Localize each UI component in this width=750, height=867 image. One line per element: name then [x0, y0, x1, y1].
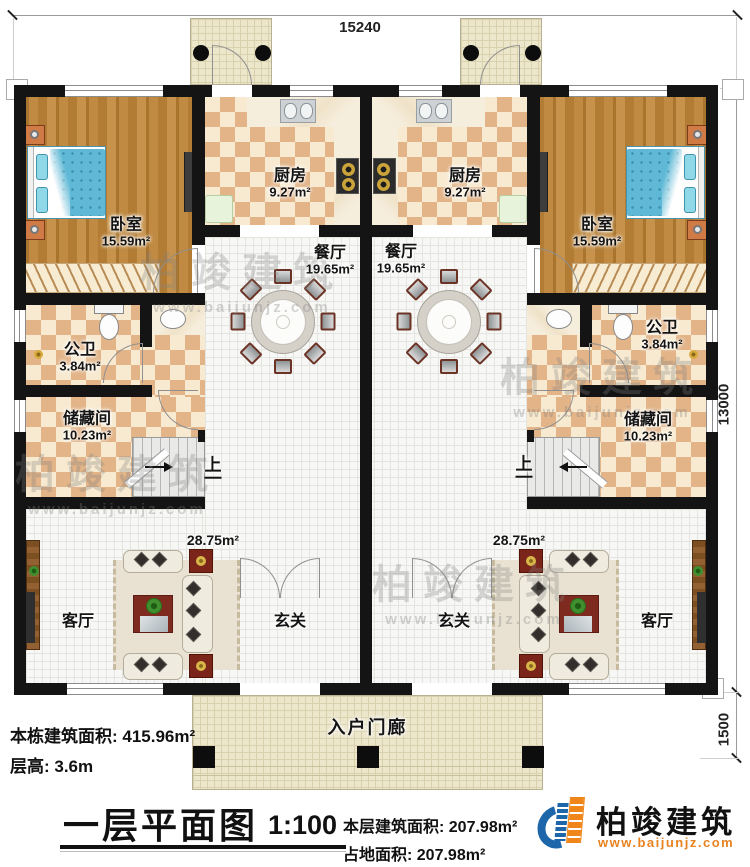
brand-website: www.baijunjz.com	[598, 835, 734, 850]
sofa-group	[112, 545, 242, 680]
porch-column	[193, 45, 209, 61]
pillow	[36, 154, 48, 180]
porch-step	[193, 775, 542, 776]
floor-plan-sheet: 15240 13000 1500 入户门廊	[0, 0, 750, 867]
wall	[192, 97, 205, 245]
entry-porch-label: 入户门廊	[328, 718, 408, 739]
wall	[492, 225, 527, 237]
wall	[442, 85, 480, 97]
lamp-icon	[196, 661, 206, 671]
sheet-scale: 1:100	[268, 810, 337, 841]
bedroom-tv	[184, 152, 192, 212]
window	[14, 310, 26, 342]
porch-column	[522, 746, 544, 768]
living-area-label: 28.75m²	[493, 532, 545, 548]
wall	[140, 305, 152, 347]
bed-group	[25, 125, 107, 240]
dining-chair	[405, 278, 428, 301]
bathroom-label: 公卫3.84m²	[641, 319, 682, 352]
porch-column	[193, 746, 215, 768]
foyer-label: 玄关	[438, 613, 470, 631]
dining-chair	[239, 342, 262, 365]
window	[67, 683, 163, 695]
burner	[342, 163, 355, 176]
wall	[527, 97, 540, 245]
nightstand	[687, 220, 707, 240]
side-table	[519, 654, 543, 678]
extension-line	[700, 758, 738, 759]
extension-line	[736, 17, 737, 79]
porch-column	[357, 746, 379, 768]
lamp-icon	[693, 130, 702, 139]
window	[706, 310, 718, 342]
title-underline-thin	[60, 851, 346, 852]
duplex-unit-left	[14, 85, 366, 695]
pillow	[684, 187, 696, 213]
headboard	[28, 147, 34, 218]
wall	[252, 85, 290, 97]
storage-label: 储藏间10.23m²	[63, 410, 111, 443]
sofa-group	[490, 545, 620, 680]
dim-side-height: 13000	[716, 383, 733, 427]
window	[399, 85, 442, 97]
dining-chair	[469, 278, 492, 301]
wall	[205, 225, 240, 237]
stair-arrow-head	[559, 462, 568, 472]
stair-arrow-head	[164, 462, 173, 472]
staircase	[132, 437, 205, 497]
wall	[163, 85, 212, 97]
dining-chair	[303, 342, 326, 365]
burner	[377, 163, 390, 176]
table-tray	[140, 616, 168, 632]
burner	[377, 178, 390, 191]
foyer-label: 玄关	[274, 613, 306, 631]
window	[569, 85, 667, 97]
lamp-icon	[196, 556, 206, 566]
title-underline	[60, 845, 346, 849]
stat-footprint: 占地面积: 207.98m²	[343, 841, 485, 865]
dim-porch-depth: 1500	[716, 708, 733, 752]
dining-chair	[397, 313, 412, 331]
bedroom-label: 卧室15.59m²	[573, 216, 621, 249]
wall	[527, 430, 534, 442]
sheet-title: 一层平面图	[63, 797, 258, 849]
wall	[366, 683, 412, 695]
wash-basin	[160, 309, 186, 329]
duplex-unit-right	[366, 85, 718, 695]
stairs-up-label: 上	[205, 456, 222, 479]
bathroom-label: 公卫3.84m²	[59, 341, 100, 374]
plant	[570, 598, 586, 614]
porch-column	[525, 45, 541, 61]
stair-arrow	[567, 466, 587, 468]
kitchen-label: 厨房9.27m²	[444, 167, 485, 200]
stove	[336, 158, 359, 194]
stove	[373, 158, 396, 194]
coffee-table	[133, 595, 173, 633]
dining-label: 餐厅19.65m²	[306, 244, 354, 277]
nightstand	[25, 125, 45, 145]
wall	[665, 683, 718, 695]
double-bed	[27, 146, 106, 219]
lamp-icon	[526, 661, 536, 671]
wall	[580, 385, 718, 397]
logo-building-icon	[566, 797, 585, 843]
sink-basin	[300, 103, 313, 119]
entry-porch: 入户门廊	[192, 695, 543, 790]
window	[706, 400, 718, 432]
wall	[14, 497, 205, 509]
wall	[366, 225, 413, 237]
wall	[580, 305, 592, 347]
wash-basin	[546, 309, 572, 329]
toilet	[99, 314, 119, 340]
living-tv	[26, 592, 35, 643]
storage-label: 储藏间10.23m²	[624, 411, 672, 444]
side-table	[189, 654, 213, 678]
dining-chair	[231, 313, 246, 331]
wall	[520, 85, 569, 97]
stairs-up-label: 上	[516, 455, 533, 478]
living-area-label: 28.75m²	[187, 532, 239, 548]
table-tray	[564, 616, 592, 632]
wall	[706, 85, 718, 310]
wall	[492, 683, 569, 695]
porch-column	[255, 45, 271, 61]
loveseat	[549, 653, 609, 680]
lamp-icon	[30, 225, 39, 234]
wall	[14, 85, 26, 310]
headboard	[698, 147, 704, 218]
pillow	[684, 154, 696, 180]
dining-label: 餐厅19.65m²	[377, 243, 425, 276]
floor-drain	[34, 350, 43, 359]
wall	[706, 432, 718, 695]
bedroom-tv	[540, 152, 548, 212]
dimension-line-top	[12, 15, 738, 16]
wardrobe	[25, 263, 160, 293]
dining-chair	[274, 269, 292, 284]
fridge	[499, 195, 527, 223]
bed-group	[625, 125, 707, 240]
kitchen-sink	[416, 99, 452, 123]
bedroom-label: 卧室15.59m²	[102, 216, 150, 249]
wall	[527, 293, 718, 305]
living-label: 客厅	[62, 613, 94, 631]
side-table	[189, 549, 213, 573]
lamp-icon	[526, 556, 536, 566]
dining-chair	[487, 313, 502, 331]
kitchen-label: 厨房9.27m²	[269, 167, 310, 200]
window	[65, 85, 163, 97]
toilet	[613, 314, 633, 340]
corner-pier	[722, 79, 744, 100]
brand-logo: 柏竣建筑 www.baijunjz.com	[538, 795, 743, 857]
double-bed	[626, 146, 705, 219]
sink-basin	[419, 103, 432, 119]
dining-chair	[440, 269, 458, 284]
sink-basin	[284, 103, 297, 119]
porch-column	[463, 45, 479, 61]
dining-chair	[303, 278, 326, 301]
dining-chair	[405, 342, 428, 365]
wall	[527, 497, 718, 509]
stat-floor-height: 层高: 3.6m	[10, 752, 93, 777]
living-label: 客厅	[641, 613, 673, 631]
window	[14, 400, 26, 432]
floor-drain	[689, 350, 698, 359]
wall	[14, 683, 67, 695]
kitchen-sink	[280, 99, 316, 123]
wall	[319, 225, 366, 237]
table-center	[276, 315, 290, 329]
lamp-icon	[30, 130, 39, 139]
plant	[146, 598, 162, 614]
wall	[14, 293, 205, 305]
nightstand	[25, 220, 45, 240]
dining-chair	[321, 313, 336, 331]
lamp-icon	[693, 225, 702, 234]
pillow	[36, 187, 48, 213]
stair-arrow	[145, 466, 165, 468]
wall	[14, 432, 26, 695]
table-center	[442, 315, 456, 329]
bed-sheet	[662, 149, 682, 216]
loveseat	[549, 550, 609, 573]
wall	[163, 683, 240, 695]
plant	[29, 566, 39, 576]
window	[569, 683, 665, 695]
extension-line	[13, 17, 14, 79]
bed-sheet	[50, 149, 70, 216]
staircase	[527, 437, 600, 497]
dining-set	[223, 262, 343, 382]
coffee-table	[559, 595, 599, 633]
dining-table	[251, 290, 315, 354]
stat-floor-area: 本层建筑面积: 207.98m²	[343, 813, 517, 837]
stair-break-line	[124, 448, 170, 488]
nightstand	[687, 125, 707, 145]
dining-chair	[440, 359, 458, 374]
window	[290, 85, 333, 97]
stat-building-total: 本栋建筑面积: 415.96m²	[10, 722, 195, 747]
party-wall	[366, 85, 372, 695]
dining-chair	[239, 278, 262, 301]
dim-top-width: 15240	[320, 19, 400, 36]
wall	[198, 430, 205, 442]
dining-chair	[469, 342, 492, 365]
wardrobe	[572, 263, 707, 293]
wall	[14, 385, 152, 397]
dining-table	[417, 290, 481, 354]
plant	[693, 566, 703, 576]
dining-set	[389, 262, 509, 382]
fridge	[205, 195, 233, 223]
living-tv	[697, 592, 706, 643]
sink-basin	[435, 103, 448, 119]
side-table	[519, 549, 543, 573]
dining-chair	[274, 359, 292, 374]
dimension-line-right	[736, 88, 737, 758]
burner	[342, 178, 355, 191]
